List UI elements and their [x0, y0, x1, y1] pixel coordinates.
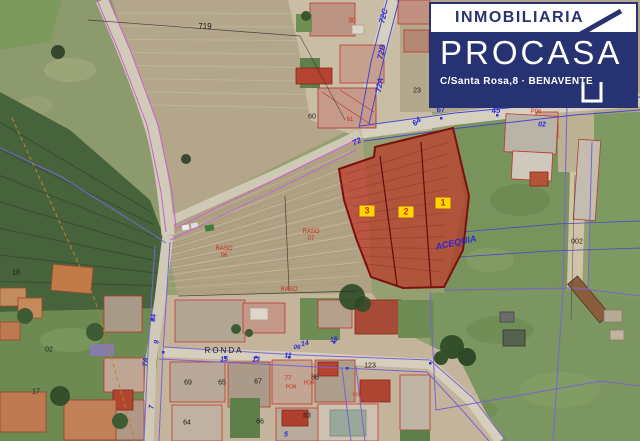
logo-roof-icon [431, 4, 640, 110]
aerial-map: 7193072C72B72A23606164726745P0602002321A… [0, 0, 640, 441]
procasa-logo: INMOBILIARIA PROCASA C/Santa Rosa,8 · BE… [429, 2, 638, 108]
